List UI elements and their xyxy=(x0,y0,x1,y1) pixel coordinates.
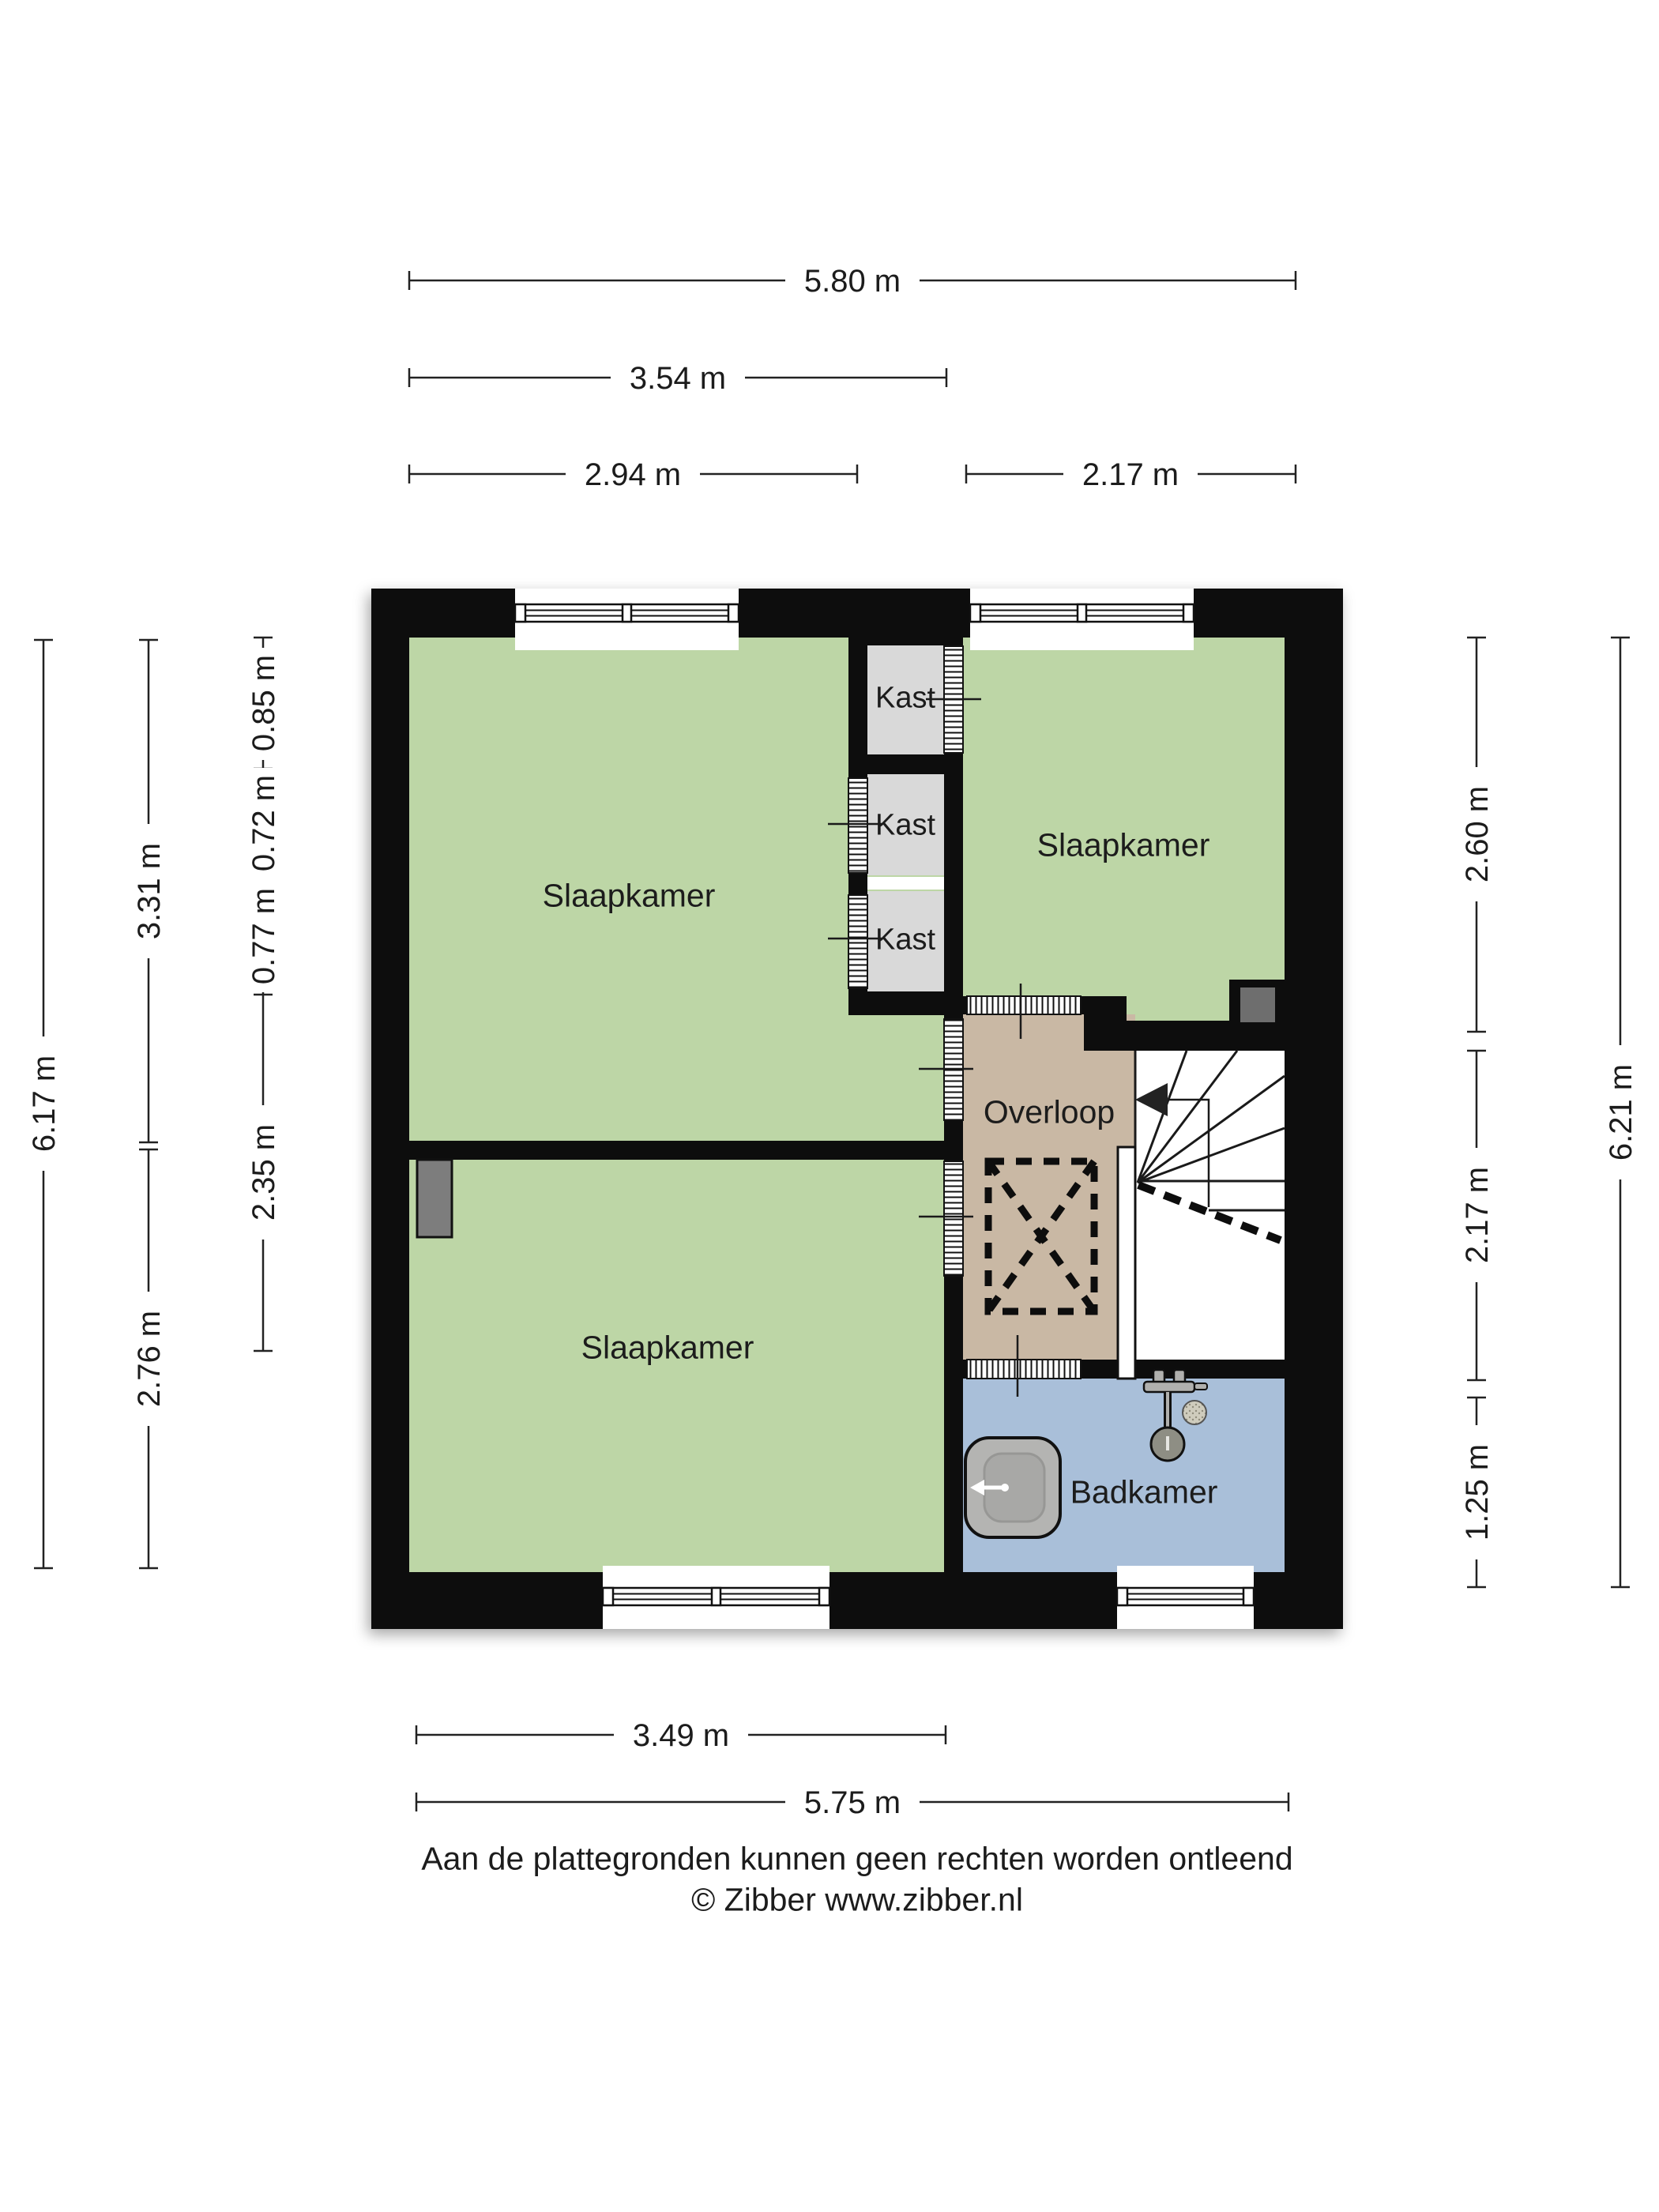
shower-drain-icon xyxy=(1183,1401,1206,1424)
shower-spout xyxy=(1194,1383,1207,1390)
svg-text:5.80 m: 5.80 m xyxy=(804,264,901,299)
svg-text:2.76 m: 2.76 m xyxy=(132,1311,167,1407)
dimension-right-top: 2.60 m xyxy=(1458,638,1495,1032)
dimension-top-right: 2.17 m xyxy=(966,453,1296,495)
svg-text:5.75 m: 5.75 m xyxy=(804,1785,901,1820)
dimension-right-bottom: 1.25 m xyxy=(1458,1398,1495,1587)
door-badkamer xyxy=(967,1360,1081,1379)
wall-kast2-kast3-block xyxy=(848,875,867,891)
wall-corner-jog xyxy=(1084,996,1127,1051)
window-bottom-left xyxy=(603,1566,829,1629)
dimension-top-left: 2.94 m xyxy=(409,453,857,495)
dimension-right-outer: 6.21 m xyxy=(1601,638,1639,1587)
label-slaapkamer-bottom-left: Slaapkamer xyxy=(581,1329,754,1365)
svg-text:2.35 m: 2.35 m xyxy=(246,1124,281,1221)
label-badkamer: Badkamer xyxy=(1070,1473,1218,1510)
wall-exterior-left xyxy=(371,589,409,1629)
svg-text:2.60 m: 2.60 m xyxy=(1460,786,1495,882)
footer-disclaimer: Aan de plattegronden kunnen geen rechten… xyxy=(421,1840,1292,1876)
stair-railing xyxy=(1118,1147,1135,1379)
door-kast-3 xyxy=(848,895,867,988)
svg-text:2.17 m: 2.17 m xyxy=(1082,457,1179,492)
door-kast-2 xyxy=(848,778,867,873)
floor-plan-page: Slaapkamer Slaapkamer Slaapkamer Kast Ka… xyxy=(0,0,1659,2212)
room-slaapkamer-top-right xyxy=(963,638,1285,996)
wall-stair-top xyxy=(1127,1021,1285,1051)
dimension-top-full: 5.80 m xyxy=(409,260,1296,301)
dimension-left-inner: 0.85 m 0.72 m 0.77 m 2.35 m xyxy=(244,638,282,1351)
label-kast-2: Kast xyxy=(875,808,935,841)
label-kast-1: Kast xyxy=(875,681,935,714)
door-slaapkamer-top-right xyxy=(967,996,1081,1014)
dimension-left-lower: 2.76 m xyxy=(130,1149,167,1568)
radiator xyxy=(417,1160,452,1237)
plan-svg: Slaapkamer Slaapkamer Slaapkamer Kast Ka… xyxy=(0,0,1659,2212)
dimension-bottom-left: 3.49 m xyxy=(416,1714,946,1755)
svg-text:0.77 m: 0.77 m xyxy=(246,888,281,984)
label-kast-3: Kast xyxy=(875,923,935,956)
dimension-bottom-full: 5.75 m xyxy=(416,1781,1288,1823)
wall-bedrooms-divider xyxy=(371,1141,944,1160)
washbasin xyxy=(965,1438,1060,1537)
wall-below-kast3 xyxy=(848,991,944,1015)
footer: Aan de plattegronden kunnen geen rechten… xyxy=(421,1840,1292,1917)
svg-text:6.21 m: 6.21 m xyxy=(1604,1064,1638,1161)
svg-text:3.49 m: 3.49 m xyxy=(633,1718,729,1753)
shower-mixer-bar xyxy=(1144,1382,1194,1392)
svg-text:1.25 m: 1.25 m xyxy=(1460,1444,1495,1540)
label-overloop: Overloop xyxy=(984,1093,1115,1130)
wall-kast1-kast2 xyxy=(848,754,963,774)
svg-text:0.85 m: 0.85 m xyxy=(246,655,281,751)
svg-text:2.17 m: 2.17 m xyxy=(1460,1167,1495,1263)
room-slaapkamer-bottom-left xyxy=(409,1160,944,1572)
floor-plan: Slaapkamer Slaapkamer Slaapkamer Kast Ka… xyxy=(371,589,1343,1629)
label-slaapkamer-top-right: Slaapkamer xyxy=(1037,826,1210,863)
svg-text:3.31 m: 3.31 m xyxy=(132,843,167,939)
door-slaapkamer-bottom-left xyxy=(944,1161,963,1276)
window-top-right xyxy=(970,589,1194,650)
wall-exterior-right xyxy=(1285,589,1343,1629)
svg-text:2.94 m: 2.94 m xyxy=(585,457,681,492)
dimension-left-upper: 3.31 m xyxy=(130,640,167,1142)
svg-text:3.54 m: 3.54 m xyxy=(630,361,726,396)
dimension-top-mid: 3.54 m xyxy=(409,357,946,398)
dimension-left-outer: 6.17 m xyxy=(24,640,62,1568)
svg-text:0.72 m: 0.72 m xyxy=(246,775,281,871)
footer-copyright: © Zibber www.zibber.nl xyxy=(691,1881,1023,1917)
window-badkamer xyxy=(1117,1566,1254,1629)
shelf-kast2-kast3 xyxy=(867,877,944,890)
chimney-duct xyxy=(1240,987,1275,1022)
svg-text:6.17 m: 6.17 m xyxy=(27,1055,62,1152)
window-top-left xyxy=(515,589,739,650)
label-slaapkamer-top-left: Slaapkamer xyxy=(543,877,716,913)
dimension-right-mid: 2.17 m xyxy=(1458,1051,1495,1380)
